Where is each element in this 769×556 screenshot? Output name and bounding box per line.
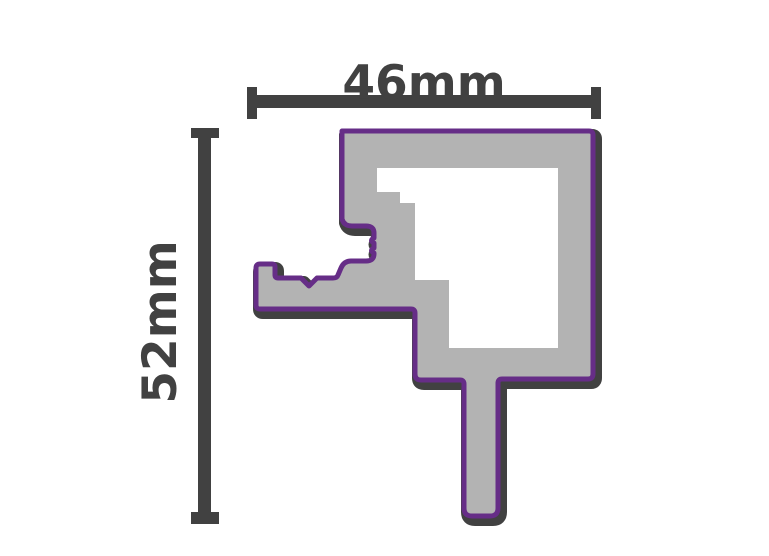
profile-diagram: 46mm 52mm [0,0,769,556]
vertical-dimension-line [198,131,211,515]
width-dimension-label: 46mm [342,56,505,111]
profile-cross-section [256,131,596,520]
vertical-dimension: 52mm [133,128,219,524]
horizontal-dimension: 46mm [247,56,601,119]
height-dimension-label: 52mm [133,240,188,403]
technical-drawing-canvas: 46mm 52mm [0,0,769,556]
